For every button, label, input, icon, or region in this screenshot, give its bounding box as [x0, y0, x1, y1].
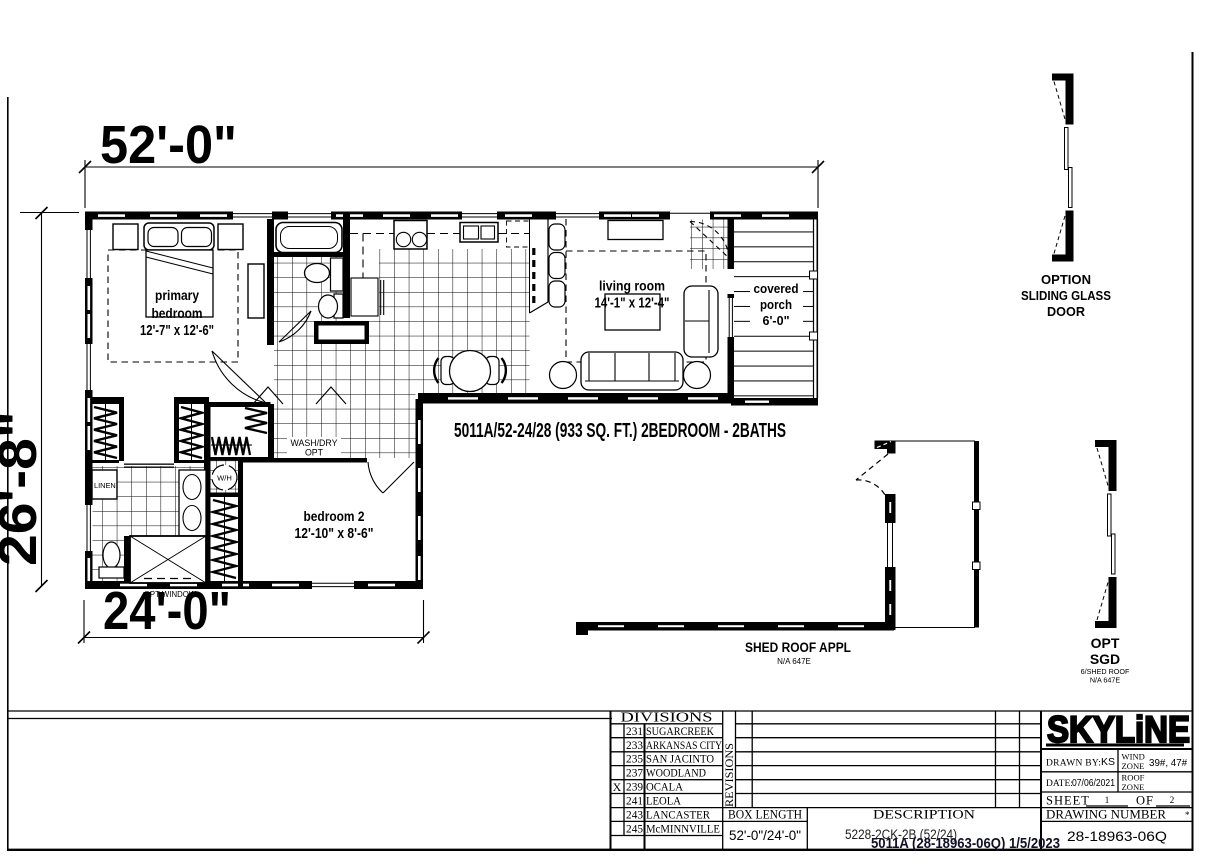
svg-text:OPTION: OPTION: [1041, 272, 1091, 287]
svg-text:DOOR: DOOR: [1047, 304, 1086, 319]
svg-text:DATE:: DATE:: [1046, 779, 1073, 789]
svg-text:SHED ROOF APPL: SHED ROOF APPL: [745, 640, 851, 655]
svg-text:KS: KS: [1101, 756, 1115, 768]
svg-text:OPT: OPT: [305, 448, 324, 458]
svg-text:52'-0": 52'-0": [100, 115, 237, 175]
svg-text:OCALA: OCALA: [646, 782, 684, 794]
svg-text:bedroom: bedroom: [152, 305, 203, 321]
svg-text:07/06/2021: 07/06/2021: [1072, 778, 1115, 789]
svg-text:LANCASTER: LANCASTER: [646, 810, 710, 822]
svg-text:235: 235: [626, 754, 643, 766]
svg-text:primary: primary: [155, 287, 199, 303]
svg-text:W/H: W/H: [217, 474, 232, 483]
svg-text:245: 245: [626, 823, 643, 835]
svg-text:233: 233: [626, 740, 643, 752]
svg-text:porch: porch: [760, 297, 792, 312]
svg-text:243: 243: [626, 810, 643, 822]
svg-text:OPT: OPT: [1091, 635, 1120, 651]
svg-text:DIVISIONS: DIVISIONS: [621, 710, 713, 725]
svg-text:LEOLA: LEOLA: [646, 796, 682, 808]
svg-text:SUGARCREEK: SUGARCREEK: [646, 726, 715, 738]
svg-text:DRAWING NUMBER: DRAWING NUMBER: [1046, 808, 1167, 822]
svg-text:ROOF: ROOF: [1122, 773, 1145, 783]
svg-text:239: 239: [626, 782, 643, 794]
svg-text:ARKANSAS CITY: ARKANSAS CITY: [646, 740, 722, 752]
svg-text:SGD: SGD: [1090, 651, 1120, 667]
svg-text:REVISIONS: REVISIONS: [724, 743, 736, 807]
svg-text:12'-7" x 12'-6": 12'-7" x 12'-6": [140, 323, 214, 339]
svg-text:N/A 647E: N/A 647E: [777, 657, 811, 666]
svg-text:X: X: [613, 780, 622, 794]
svg-text:39#, 47#: 39#, 47#: [1149, 758, 1188, 769]
svg-text:ZONE: ZONE: [1122, 761, 1145, 771]
svg-text:12'-10" x 8'-6": 12'-10" x 8'-6": [295, 526, 374, 542]
svg-text:SLIDING GLASS: SLIDING GLASS: [1021, 288, 1111, 303]
svg-text:*: *: [1185, 810, 1190, 820]
svg-text:5011A/52-24/28 (933 SQ. FT.) 2: 5011A/52-24/28 (933 SQ. FT.) 2BEDROOM - …: [454, 420, 786, 442]
svg-text:237: 237: [626, 768, 643, 780]
svg-text:DESCRIPTION: DESCRIPTION: [873, 808, 975, 822]
svg-text:52'-0"/24'-0": 52'-0"/24'-0": [729, 828, 801, 843]
svg-text:McMINNVILLE: McMINNVILLE: [646, 823, 720, 835]
svg-text:BOX LENGTH: BOX LENGTH: [728, 808, 802, 822]
svg-text:14'-1" x 12'-4": 14'-1" x 12'-4": [595, 296, 670, 312]
svg-text:OF: OF: [1136, 794, 1154, 808]
svg-text:5011A (28-18963-06Q) 1/5/2023: 5011A (28-18963-06Q) 1/5/2023: [871, 835, 1060, 852]
svg-text:LINEN: LINEN: [94, 481, 116, 490]
svg-text:bedroom 2: bedroom 2: [304, 508, 365, 524]
svg-text:WOODLAND: WOODLAND: [646, 768, 706, 780]
svg-text:covered: covered: [754, 281, 799, 296]
svg-text:WASH/DRY: WASH/DRY: [291, 438, 338, 448]
svg-text:28-18963-06Q: 28-18963-06Q: [1067, 828, 1167, 844]
svg-text:OPT WINDOW: OPT WINDOW: [144, 590, 197, 599]
svg-text:26'-8": 26'-8": [0, 411, 48, 566]
svg-text:WIND: WIND: [1122, 752, 1145, 762]
svg-text:1: 1: [1105, 795, 1110, 805]
svg-text:ZONE: ZONE: [1122, 782, 1145, 792]
svg-text:231: 231: [626, 726, 643, 738]
svg-text:DRAWN BY:: DRAWN BY:: [1046, 759, 1101, 769]
svg-text:SAN JACINTO: SAN JACINTO: [646, 754, 714, 766]
svg-text:6'-0": 6'-0": [763, 313, 790, 328]
svg-text:2: 2: [1170, 795, 1175, 805]
svg-text:N/A 647E: N/A 647E: [1090, 676, 1121, 685]
svg-text:241: 241: [626, 796, 643, 808]
svg-text:living room: living room: [599, 278, 665, 294]
svg-text:SHEET: SHEET: [1046, 794, 1090, 808]
